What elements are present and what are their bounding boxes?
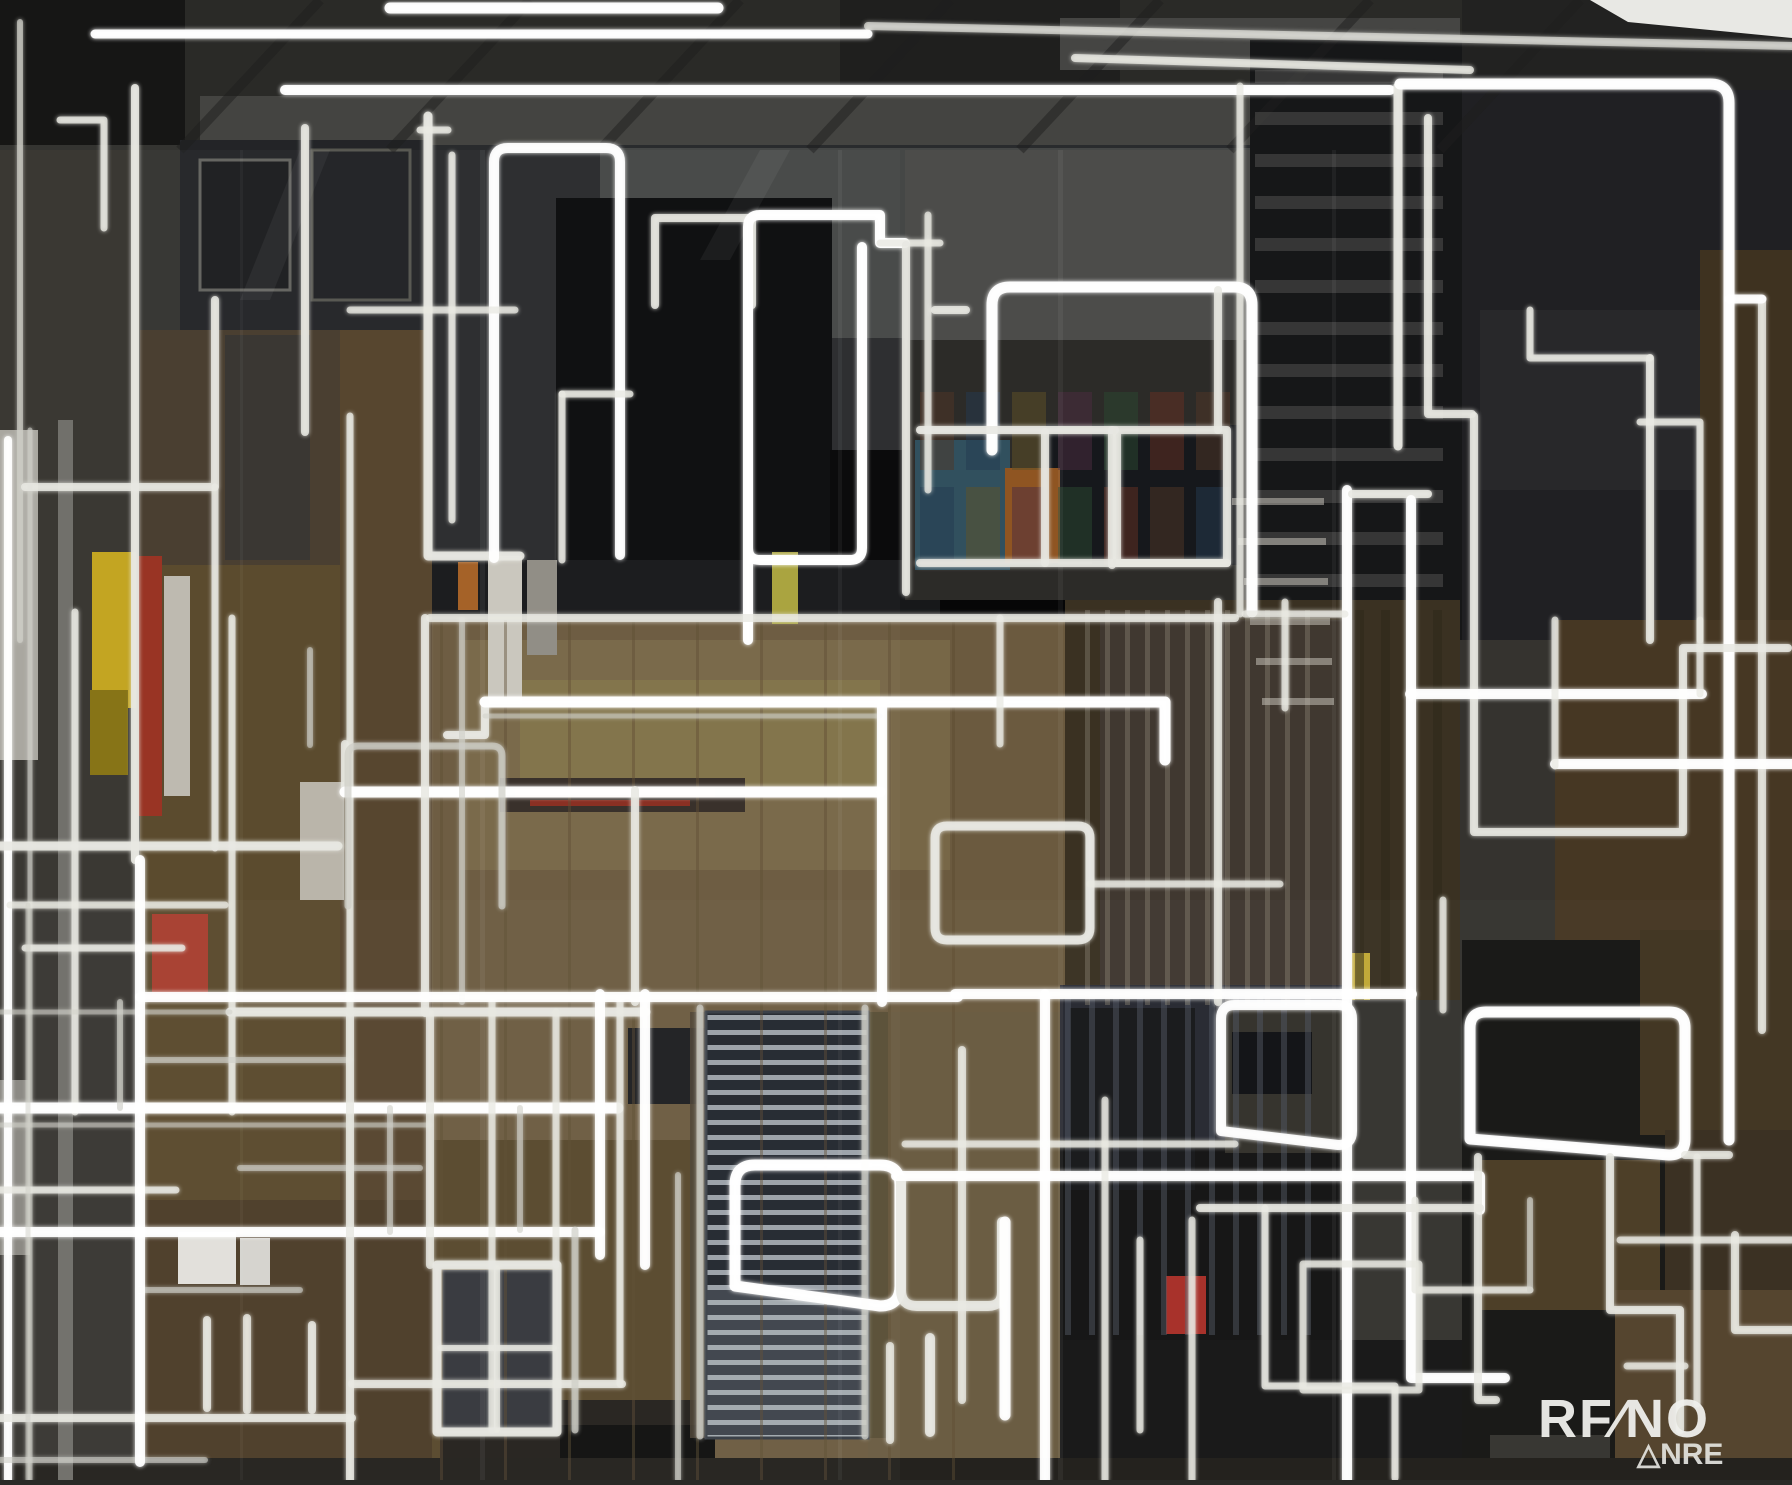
svg-text:△NRE: △NRE	[1636, 1438, 1723, 1471]
